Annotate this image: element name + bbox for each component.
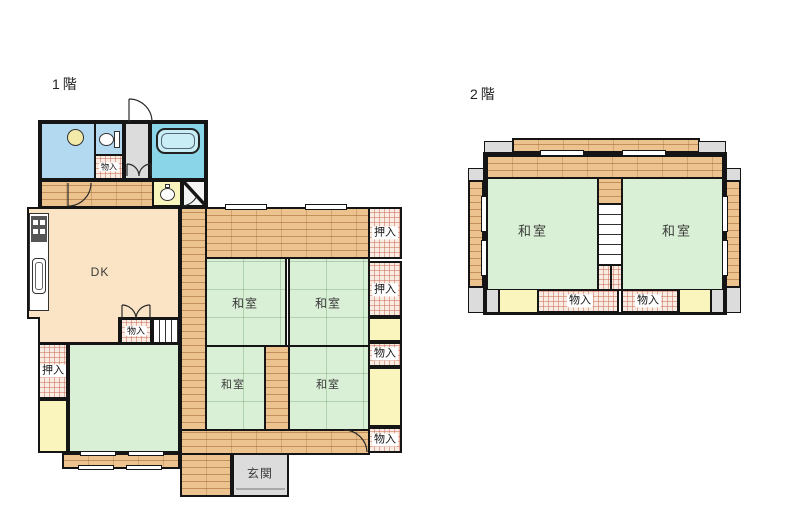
closet-monoire-dk-label: 物入: [125, 326, 147, 336]
toilet-bowl-icon: [99, 133, 114, 146]
toilet-tank-icon: [114, 131, 120, 148]
service-strip-2f-left: [499, 289, 539, 313]
closet-under-stairs-2f: [597, 264, 623, 291]
stove-icon: [31, 216, 47, 242]
balcony-top-cap-left: [484, 141, 514, 153]
stairs-1f: [152, 318, 180, 344]
room-washitsu-2f-left-label: 和室: [518, 221, 548, 240]
closet-monoire-2-label: 物入: [372, 433, 398, 446]
window: [225, 204, 267, 210]
balcony-right-cap-bottom: [725, 287, 741, 313]
window: [305, 204, 347, 210]
floor2-title: 2階: [470, 84, 498, 104]
room-dk-label: DK: [91, 265, 110, 279]
room-washroom: [40, 122, 96, 180]
corridor-bottom: [180, 429, 370, 455]
corridor-top: [205, 207, 370, 259]
stairs-2f: [597, 203, 623, 266]
window: [622, 150, 666, 156]
service-strip-2: [368, 367, 402, 427]
room-washitsu-1-label: 和室: [232, 295, 258, 312]
room-lower-left: [68, 343, 180, 453]
room-dk-extension: [38, 317, 120, 344]
service-strip-1: [368, 317, 402, 342]
window: [126, 465, 162, 470]
closet-oshiire-2-label: 押入: [372, 283, 398, 296]
corridor-middle: [264, 345, 290, 431]
stair-landing-2f: [597, 177, 623, 205]
bathtub-icon: [156, 128, 200, 154]
corridor-genkan-side: [180, 453, 232, 497]
diagonal-entry-nook: [182, 180, 206, 207]
corridor-2f: [486, 155, 724, 179]
room-dk: [27, 207, 180, 319]
sink-oval-icon: [67, 129, 84, 146]
corridor-vertical: [180, 207, 207, 431]
closet-oshiire-left-label: 押入: [40, 364, 66, 377]
service-strip-left: [38, 399, 68, 453]
window: [722, 240, 728, 276]
gray-corner-bl-2f: [486, 289, 499, 313]
window: [481, 240, 487, 276]
washbasin-icon: [160, 188, 175, 201]
closet-monoire-2f-right-label: 物入: [635, 294, 661, 307]
room-washitsu-3-label: 和室: [221, 376, 245, 392]
faucet-icon: [165, 184, 170, 188]
balcony-top-cap-right: [698, 141, 726, 153]
floor-plan-canvas: 1階 物入 DK 物入 和室 和室 和室 和室: [0, 0, 800, 524]
room-washitsu-4-label: 和室: [316, 376, 340, 392]
closet-monoire-sanitary-label: 物入: [99, 162, 119, 171]
closet-monoire-1-label: 物入: [372, 347, 398, 360]
room-washitsu-2f-right-label: 和室: [662, 221, 692, 240]
closet-oshiire-1-label: 押入: [372, 226, 398, 239]
window: [78, 465, 114, 470]
vestibule: [124, 122, 150, 180]
window: [540, 150, 584, 156]
closet-monoire-2f-left-label: 物入: [567, 294, 593, 307]
room-washitsu-2-label: 和室: [315, 295, 341, 312]
room-bath: [150, 122, 206, 180]
window: [481, 196, 487, 232]
room-genkan-label: 玄関: [247, 465, 273, 482]
balcony-left-cap-bottom: [468, 287, 484, 313]
kitchen-sink-icon: [32, 258, 46, 294]
floor1-title: 1階: [52, 74, 80, 94]
room-toilet: [94, 122, 124, 156]
corridor-sanitary: [40, 180, 154, 208]
window: [722, 196, 728, 232]
window: [80, 451, 116, 456]
window: [128, 451, 164, 456]
service-strip-2f-right: [679, 289, 711, 313]
gray-corner-br-2f: [711, 289, 724, 313]
washbasin-area: [152, 180, 182, 207]
